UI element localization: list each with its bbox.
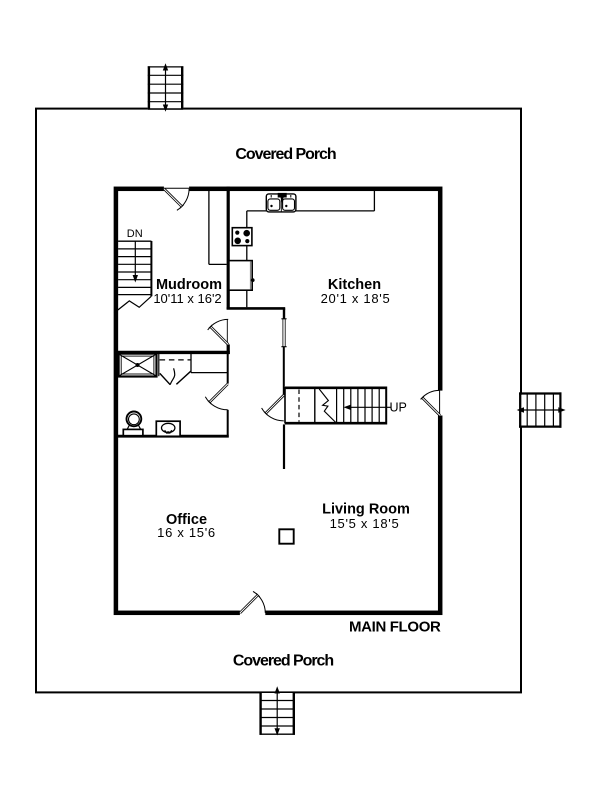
svg-text:16 x 15'6: 16 x 15'6 bbox=[157, 525, 216, 540]
svg-text:20'1 x 18'5: 20'1 x 18'5 bbox=[321, 291, 391, 306]
svg-text:Covered Porch: Covered Porch bbox=[233, 652, 333, 669]
svg-text:10'11 x 16'2: 10'11 x 16'2 bbox=[153, 291, 221, 306]
svg-text:15'5 x 18'5: 15'5 x 18'5 bbox=[330, 516, 400, 531]
svg-text:MAIN FLOOR: MAIN FLOOR bbox=[349, 618, 441, 635]
svg-text:DN: DN bbox=[127, 228, 143, 240]
svg-text:UP: UP bbox=[390, 401, 407, 415]
svg-text:Covered Porch: Covered Porch bbox=[235, 146, 335, 163]
